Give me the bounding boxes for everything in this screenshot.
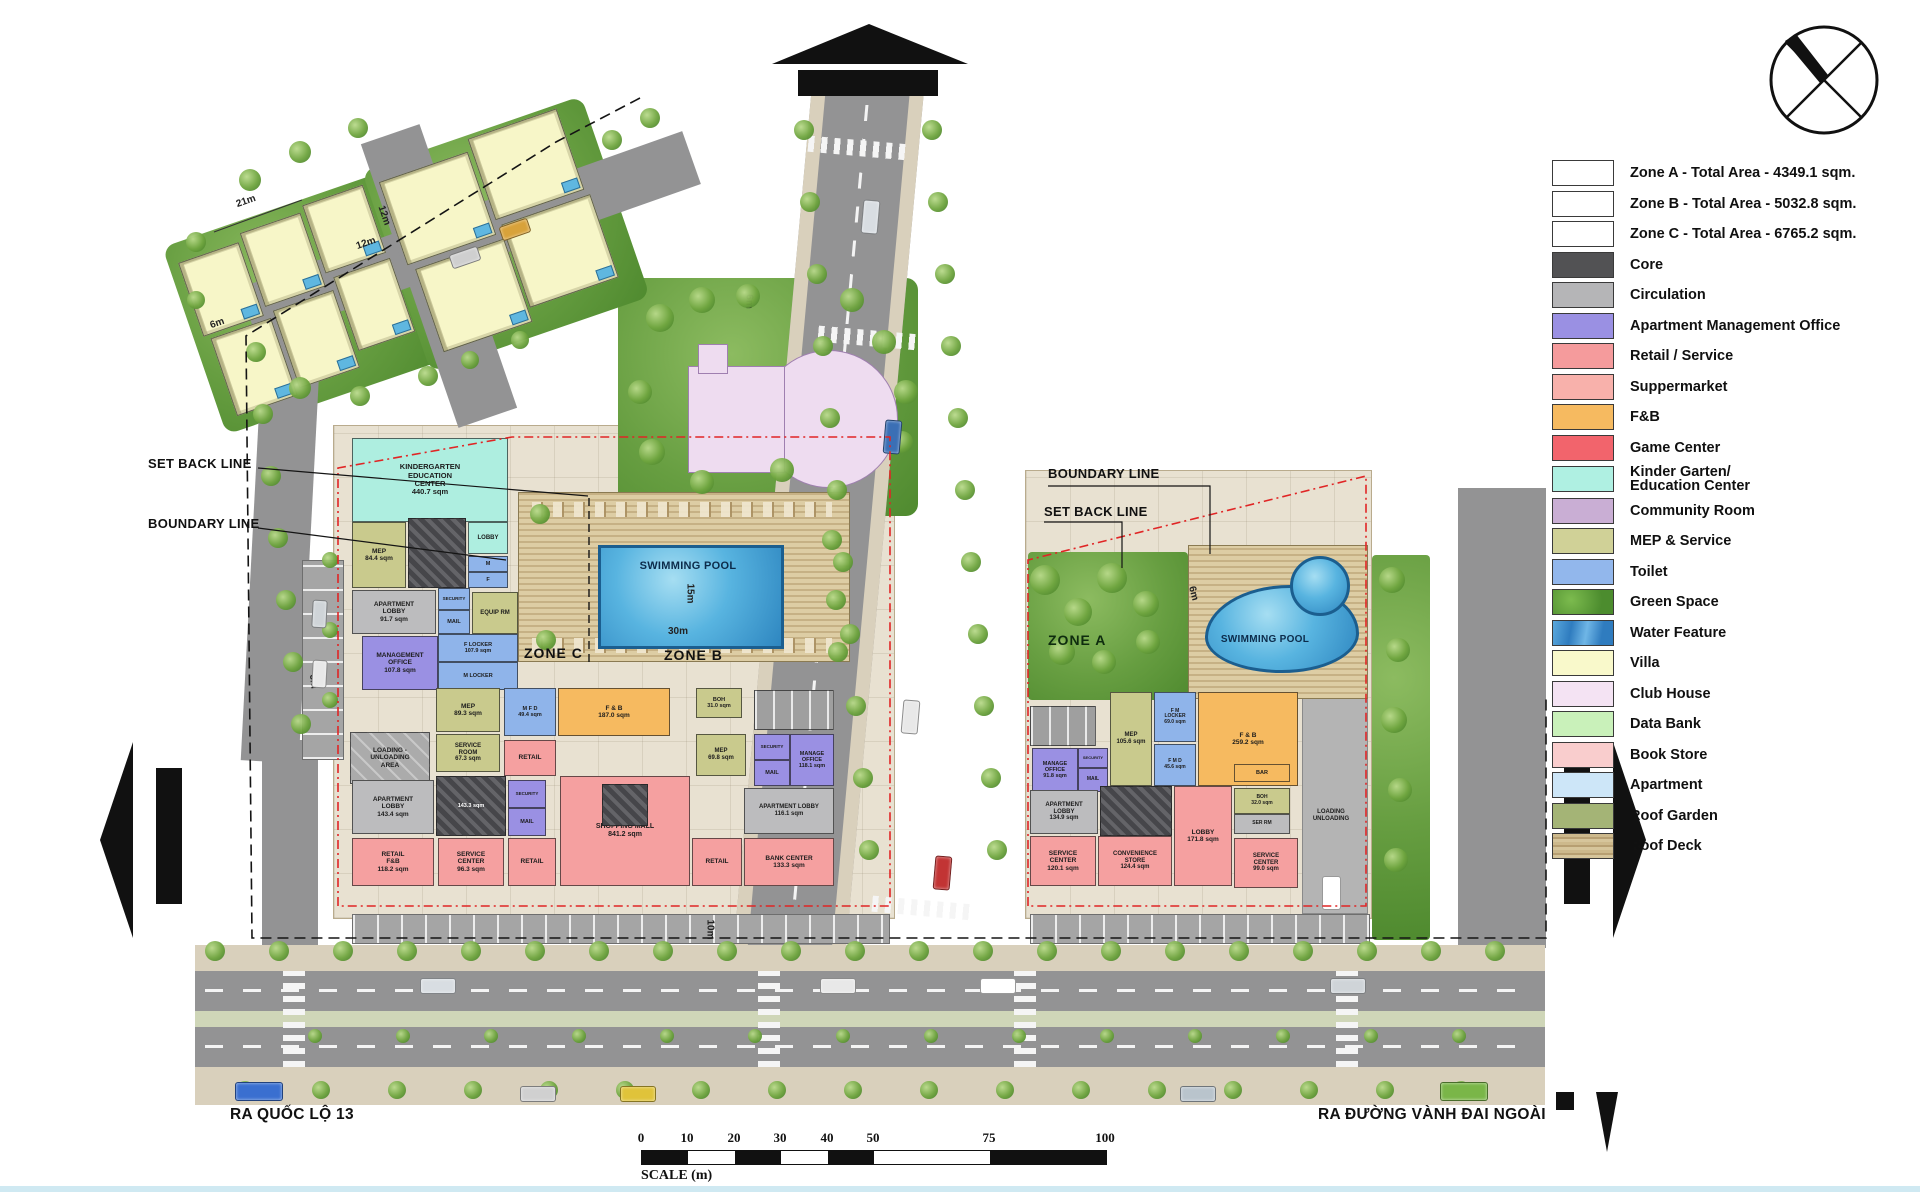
room-wc2: M F D 49.4 sqm (504, 688, 556, 736)
room-bar1: BAR (1234, 764, 1290, 782)
legend-row-fnb: F&B (1552, 404, 1918, 430)
tree-icon (1364, 1029, 1378, 1043)
car-icon (420, 978, 456, 994)
tree-icon (261, 466, 281, 486)
tree-icon (396, 1029, 410, 1043)
boundary-line-label-left: BOUNDARY LINE (148, 516, 260, 531)
tree-icon (1386, 638, 1410, 662)
room-label-mep4: MEP 105.6 sqm (1116, 732, 1145, 745)
room-label-conv1: CONVENIENCE STORE 124.4 sqm (1113, 851, 1157, 871)
room-mail3: MAIL (754, 760, 790, 786)
tree-icon (1012, 1029, 1026, 1043)
room-boh2: BOH 32.0 sqm (1234, 788, 1290, 814)
legend-label-kinder-garten-education-center: Kinder Garten/ Education Center (1630, 465, 1750, 493)
room-label-wcM1: M (486, 561, 491, 567)
tree-icon (820, 408, 840, 428)
legend-row-roof-deck: Roof Deck (1552, 833, 1918, 859)
tree-icon (813, 336, 833, 356)
scale-tick-50: 50 (867, 1130, 880, 1146)
tree-icon (1072, 1081, 1090, 1099)
set-back-line-label-left: SET BACK LINE (148, 456, 252, 471)
room-retail3: RETAIL (692, 838, 742, 886)
tree-icon (397, 941, 417, 961)
tree-icon (770, 458, 794, 482)
room-wcF1: F (468, 572, 508, 588)
dimension-d12a: 12m (376, 204, 393, 227)
tree-icon (844, 1081, 862, 1099)
room-label-sec2: SECURITY (516, 791, 539, 796)
room-loading1: LOADING - UNLOADING AREA (350, 732, 430, 784)
tree-icon (283, 652, 303, 672)
dimension-d10: 10m (705, 919, 716, 939)
room-label-mail1: MAIL (447, 619, 460, 625)
west-exit-arrow-icon (90, 730, 190, 950)
room-core2: 143.3 sqm (436, 776, 506, 836)
room-sec1: SECURITY (438, 588, 470, 610)
room-label-mail3: MAIL (765, 770, 778, 776)
room-label-mgof2: MANAGE OFFICE 91.8 sqm (1043, 761, 1067, 779)
tree-icon (187, 291, 205, 309)
tree-icon (1100, 1029, 1114, 1043)
tree-icon (1293, 941, 1313, 961)
legend-label-apartment-management-office: Apartment Management Office (1630, 319, 1840, 333)
room-sec2: SECURITY (508, 780, 546, 808)
legend-row-green-space: Green Space (1552, 589, 1918, 615)
tree-icon (935, 264, 955, 284)
tree-icon (948, 408, 968, 428)
tree-icon (1188, 1029, 1202, 1043)
site-plan-canvas: KINDERGARTEN EDUCATION CENTER 440.7 sqmM… (0, 0, 1920, 1192)
scale-tick-30: 30 (774, 1130, 787, 1146)
legend-label-suppermarket: Suppermarket (1630, 380, 1728, 394)
scale-segment (828, 1151, 874, 1164)
dimension-d12b: 12m (355, 235, 378, 252)
legend-label-green-space: Green Space (1630, 595, 1719, 609)
room-label-mail4: MAIL (1087, 777, 1099, 783)
legend-label-community-room: Community Room (1630, 504, 1755, 518)
room-conv1: CONVENIENCE STORE 124.4 sqm (1098, 836, 1172, 886)
tree-icon (955, 480, 975, 500)
legend-label-villa: Villa (1630, 656, 1660, 670)
legend-row-apartment-management-office: Apartment Management Office (1552, 313, 1918, 339)
tree-icon (1384, 848, 1408, 872)
tree-icon (640, 108, 660, 128)
tree-icon (845, 941, 865, 961)
legend-swatch-fnb (1552, 404, 1614, 430)
legend-swatch-green-space (1552, 589, 1614, 615)
room-retailfb1: RETAIL F&B 118.2 sqm (352, 838, 434, 886)
tree-icon (827, 480, 847, 500)
legend-swatch-book-store (1552, 742, 1614, 768)
scale-tick-10: 10 (681, 1130, 694, 1146)
room-aptlobby3: APARTMENT LOBBY 116.1 sqm (744, 788, 834, 834)
tree-icon (822, 530, 842, 550)
room-label-sec1: SECURITY (443, 596, 466, 601)
legend-swatch-core (1552, 252, 1614, 278)
tree-icon (1421, 941, 1441, 961)
room-label-wc3: F M D 45.6 sqm (1164, 759, 1185, 770)
car-icon (1322, 876, 1341, 910)
room-label-mgmt1: MANAGEMENT OFFICE 107.8 sqm (376, 652, 423, 674)
legend-swatch-suppermarket (1552, 374, 1614, 400)
tree-icon (646, 304, 674, 332)
legend-row-apartment: Apartment (1552, 772, 1918, 798)
room-label-boh2: BOH 32.0 sqm (1251, 795, 1272, 806)
room-aptlobby4: APARTMENT LOBBY 134.9 sqm (1030, 790, 1098, 834)
legend-swatch-roof-deck (1552, 833, 1614, 859)
legend-label-club-house: Club House (1630, 687, 1711, 701)
legend-row-zone-b-total: Zone B - Total Area - 5032.8 sqm. (1552, 191, 1918, 217)
room-label-serrm1: SER RM (1252, 821, 1271, 827)
room-label-boh1: BOH 31.0 sqm (707, 697, 731, 709)
tree-icon (924, 1029, 938, 1043)
room-mep1: MEP 84.4 sqm (352, 522, 406, 588)
legend-row-core: Core (1552, 252, 1918, 278)
tree-icon (748, 1029, 762, 1043)
zone-c-label: ZONE C (524, 645, 583, 661)
tree-icon (840, 288, 864, 312)
dimension-d15: 15m (685, 583, 696, 603)
legend-row-game-center: Game Center (1552, 435, 1918, 461)
room-label-core2: 143.3 sqm (458, 803, 485, 809)
legend-label-mep-service: MEP & Service (1630, 534, 1731, 548)
room-fnb1: F & B 187.0 sqm (558, 688, 670, 736)
legend-label-data-bank: Data Bank (1630, 717, 1701, 731)
tree-icon (461, 351, 479, 369)
tree-icon (781, 941, 801, 961)
room-lobby2: LOBBY 171.8 sqm (1174, 786, 1232, 886)
boundary-line-label-right: BOUNDARY LINE (1048, 466, 1160, 481)
room-retail1: RETAIL (504, 740, 556, 776)
room-mail1: MAIL (438, 610, 470, 634)
tree-icon (653, 941, 673, 961)
car-icon (1180, 1086, 1216, 1102)
tree-icon (1381, 707, 1407, 733)
legend-label-zone-b-total: Zone B - Total Area - 5032.8 sqm. (1630, 197, 1856, 211)
tree-icon (853, 768, 873, 788)
tree-icon (833, 552, 853, 572)
swimming-pool-label-left: SWIMMING POOL (608, 560, 768, 572)
tree-icon (348, 118, 368, 138)
room-label-servctr1: SERVICE CENTER 96.3 sqm (457, 851, 485, 873)
room-label-loading1: LOADING - UNLOADING AREA (370, 747, 409, 769)
tree-icon (1037, 941, 1057, 961)
tree-icon (1276, 1029, 1290, 1043)
scale-segment (642, 1151, 688, 1164)
tree-icon (859, 840, 879, 860)
legend-label-apartment: Apartment (1630, 778, 1703, 792)
tree-icon (1136, 630, 1160, 654)
tree-icon (828, 642, 848, 662)
tree-icon (253, 404, 273, 424)
dimension-d30: 30m (668, 626, 688, 637)
legend-row-circulation: Circulation (1552, 282, 1918, 308)
legend-row-club-house: Club House (1552, 681, 1918, 707)
room-boh1: BOH 31.0 sqm (696, 688, 742, 718)
legend-swatch-data-bank (1552, 711, 1614, 737)
legend-swatch-game-center (1552, 435, 1614, 461)
scale-label: SCALE (m) (641, 1168, 712, 1184)
room-label-aptlobby3: APARTMENT LOBBY 116.1 sqm (759, 804, 819, 817)
tree-icon (1357, 941, 1377, 961)
tree-icon (1224, 1081, 1242, 1099)
legend-swatch-villa (1552, 650, 1614, 676)
car-icon (311, 660, 327, 689)
room-kinder: KINDERGARTEN EDUCATION CENTER 440.7 sqm (352, 438, 508, 522)
legend-label-retail-service: Retail / Service (1630, 349, 1733, 363)
car-icon (861, 199, 881, 234)
room-serrm1: SER RM (1234, 814, 1290, 834)
legend-row-zone-a-total: Zone A - Total Area - 4349.1 sqm. (1552, 160, 1918, 186)
legend-label-core: Core (1630, 258, 1663, 272)
tree-icon (768, 1081, 786, 1099)
room-label-lobby1: LOBBY (478, 535, 499, 542)
room-label-mep2: MEP 89.3 sqm (454, 703, 482, 718)
scale-segment (990, 1151, 1106, 1164)
room-label-loadlbl: LOADING UNLOADING (1313, 809, 1349, 822)
tree-icon (974, 696, 994, 716)
car-icon (1330, 978, 1366, 994)
legend-label-roof-garden: Roof Garden (1630, 809, 1718, 823)
car-icon (520, 1086, 556, 1102)
legend-swatch-mep-service (1552, 528, 1614, 554)
tree-icon (968, 624, 988, 644)
room-label-flock1: F LOCKER 107.9 sqm (464, 642, 492, 654)
legend-label-water-feature: Water Feature (1630, 626, 1726, 640)
scale-bar (641, 1150, 1107, 1165)
room-sec3: SECURITY (754, 734, 790, 760)
legend-label-zone-c-total: Zone C - Total Area - 6765.2 sqm. (1630, 227, 1856, 241)
tree-icon (205, 941, 225, 961)
legend-label-circulation: Circulation (1630, 288, 1706, 302)
room-label-mgof1: MANAGE OFFICE 118.1 sqm (799, 751, 825, 769)
tree-icon (308, 1029, 322, 1043)
tree-icon (840, 624, 860, 644)
tree-icon (1092, 650, 1116, 674)
tree-icon (589, 941, 609, 961)
legend-swatch-zone-c-total (1552, 221, 1614, 247)
room-serv1: SERVICE ROOM 67.3 sqm (436, 734, 500, 772)
room-label-wcF1: F (486, 577, 489, 583)
dimension-d6d: 6m (209, 316, 226, 331)
tree-icon (794, 120, 814, 140)
scale-tick-75: 75 (983, 1130, 996, 1146)
legend-swatch-club-house (1552, 681, 1614, 707)
room-label-aptlobby1: APARTMENT LOBBY 91.7 sqm (374, 601, 414, 623)
tree-icon (628, 380, 652, 404)
dimension-d6c: 6m (1186, 585, 1200, 602)
room-label-servctr3: SERVICE CENTER 99.0 sqm (1253, 853, 1279, 873)
tree-icon (909, 941, 929, 961)
room-label-wc2: M F D 49.4 sqm (518, 706, 542, 718)
legend-swatch-water-feature (1552, 620, 1614, 646)
room-mgof1: MANAGE OFFICE 118.1 sqm (790, 734, 834, 786)
tree-icon (846, 696, 866, 716)
room-mep3: MEP 69.8 sqm (696, 734, 746, 776)
tree-icon (239, 169, 261, 191)
tree-icon (928, 192, 948, 212)
room-loadlbl: LOADING UNLOADING (1300, 796, 1362, 836)
room-label-retail2: RETAIL (521, 858, 544, 865)
scale-segment (874, 1151, 990, 1164)
legend-row-kinder-garten-education-center: Kinder Garten/ Education Center (1552, 465, 1918, 493)
room-mlock1: M LOCKER (438, 662, 518, 690)
scale-tick-20: 20 (728, 1130, 741, 1146)
tree-icon (1064, 598, 1092, 626)
car-icon (498, 218, 531, 242)
zone-b-label: ZONE B (664, 647, 723, 663)
legend: Zone A - Total Area - 4349.1 sqm.Zone B … (1552, 160, 1918, 859)
room-park2 (1030, 706, 1096, 746)
car-icon (901, 699, 921, 734)
tree-icon (1165, 941, 1185, 961)
tree-icon (388, 1081, 406, 1099)
tree-icon (894, 380, 918, 404)
tree-icon (602, 130, 622, 150)
tree-icon (941, 336, 961, 356)
tree-icon (312, 1081, 330, 1099)
tree-icon (1229, 941, 1249, 961)
room-label-mep1: MEP 84.4 sqm (365, 548, 393, 563)
legend-row-suppermarket: Suppermarket (1552, 374, 1918, 400)
tree-icon (1097, 563, 1127, 593)
room-label-fnb2: F & B 259.2 sqm (1232, 732, 1263, 747)
room-label-aptlobby2: APARTMENT LOBBY 143.4 sqm (373, 796, 413, 818)
tree-icon (464, 1081, 482, 1099)
legend-row-water-feature: Water Feature (1552, 620, 1918, 646)
zone-a-label: ZONE A (1048, 632, 1106, 648)
legend-swatch-apartment (1552, 772, 1614, 798)
room-label-fnb1: F & B 187.0 sqm (598, 705, 629, 720)
tree-icon (186, 232, 206, 252)
tree-icon (996, 1081, 1014, 1099)
legend-swatch-retail-service (1552, 343, 1614, 369)
room-core1 (408, 518, 466, 588)
tree-icon (525, 941, 545, 961)
room-label-mlock1: M LOCKER (463, 673, 492, 679)
car-icon (980, 978, 1016, 994)
room-label-mep3: MEP 69.8 sqm (708, 748, 734, 761)
room-mgmt1: MANAGEMENT OFFICE 107.8 sqm (362, 636, 438, 690)
car-icon (883, 419, 903, 454)
room-wc3: F M D 45.6 sqm (1154, 744, 1196, 786)
tree-icon (800, 192, 820, 212)
street-label-west: RA QUỐC LỘ 13 (230, 1106, 354, 1124)
room-servctr2: SERVICE CENTER 120.1 sqm (1030, 836, 1096, 886)
tree-icon (511, 331, 529, 349)
scale-tick-40: 40 (821, 1130, 834, 1146)
page-edge-strip (0, 1186, 1920, 1192)
legend-label-book-store: Book Store (1630, 748, 1707, 762)
legend-label-roof-deck: Roof Deck (1630, 839, 1702, 853)
room-mep4: MEP 105.6 sqm (1110, 692, 1152, 786)
scale-tick-0: 0 (638, 1130, 645, 1146)
tree-icon (736, 284, 760, 308)
room-aptlobby1: APARTMENT LOBBY 91.7 sqm (352, 590, 436, 634)
tree-icon (418, 366, 438, 386)
room-label-bar1: BAR (1256, 770, 1268, 776)
legend-swatch-circulation (1552, 282, 1614, 308)
room-servctr3: SERVICE CENTER 99.0 sqm (1234, 838, 1298, 888)
tree-icon (981, 768, 1001, 788)
room-label-mail2: MAIL (520, 819, 533, 825)
tree-icon (639, 439, 665, 465)
legend-label-game-center: Game Center (1630, 441, 1720, 455)
scale-tick-100: 100 (1095, 1130, 1115, 1146)
room-core2b (602, 784, 648, 826)
room-aptlobby2: APARTMENT LOBBY 143.4 sqm (352, 780, 434, 834)
legend-swatch-zone-b-total (1552, 191, 1614, 217)
tree-icon (572, 1029, 586, 1043)
legend-label-fnb: F&B (1630, 410, 1660, 424)
legend-row-community-room: Community Room (1552, 498, 1918, 524)
room-retail2: RETAIL (508, 838, 556, 886)
room-label-retail3: RETAIL (706, 858, 729, 865)
tree-icon (1452, 1029, 1466, 1043)
tree-icon (826, 590, 846, 610)
room-equip1: EQUIP RM (472, 592, 518, 634)
room-label-lobby2: LOBBY 171.8 sqm (1187, 829, 1218, 844)
room-bank1: BANK CENTER 133.3 sqm (744, 838, 834, 886)
car-icon (311, 600, 327, 629)
scale-segment (735, 1151, 781, 1164)
street-label-east: RA ĐƯỜNG VÀNH ĐAI NGOÀI (1318, 1106, 1546, 1124)
tree-icon (1485, 941, 1505, 961)
legend-row-mep-service: MEP & Service (1552, 528, 1918, 554)
room-mep2: MEP 89.3 sqm (436, 688, 500, 732)
tree-icon (1148, 1081, 1166, 1099)
legend-swatch-roof-garden (1552, 803, 1614, 829)
room-lobby1: LOBBY (468, 522, 508, 554)
tree-icon (1376, 1081, 1394, 1099)
room-label-servctr2: SERVICE CENTER 120.1 sqm (1047, 850, 1078, 872)
dimension-d21: 21m (235, 193, 258, 210)
north-compass-icon (1762, 18, 1886, 142)
scale-segment (781, 1151, 828, 1164)
room-flock1: F LOCKER 107.9 sqm (438, 634, 518, 662)
car-icon (933, 855, 953, 890)
tree-icon (987, 840, 1007, 860)
room-park1 (754, 690, 834, 730)
legend-row-retail-service: Retail / Service (1552, 343, 1918, 369)
room-label-serv1: SERVICE ROOM 67.3 sqm (455, 743, 481, 763)
tree-icon (268, 528, 288, 548)
tree-icon (1101, 941, 1121, 961)
swimming-pool-label-right: SWIMMING POOL (1200, 634, 1330, 645)
tree-icon (322, 692, 338, 708)
legend-row-data-bank: Data Bank (1552, 711, 1918, 737)
room-label-retailfb1: RETAIL F&B 118.2 sqm (377, 851, 408, 873)
tree-icon (530, 504, 550, 524)
car-icon (448, 246, 481, 270)
tree-icon (289, 377, 311, 399)
car-icon (620, 1086, 656, 1102)
room-sec4: SECURITY (1078, 748, 1108, 768)
room-label-lock1: F M LOCKER 69.0 sqm (1164, 709, 1185, 726)
tree-icon (973, 941, 993, 961)
room-lock1: F M LOCKER 69.0 sqm (1154, 692, 1196, 742)
tree-icon (920, 1081, 938, 1099)
tree-icon (1030, 565, 1060, 595)
tree-icon (246, 342, 266, 362)
tree-icon (289, 141, 311, 163)
room-label-sec4: SECURITY (1083, 756, 1103, 760)
tree-icon (961, 552, 981, 572)
legend-swatch-zone-a-total (1552, 160, 1614, 186)
room-label-sec3: SECURITY (761, 744, 784, 749)
tree-icon (484, 1029, 498, 1043)
legend-swatch-community-room (1552, 498, 1614, 524)
